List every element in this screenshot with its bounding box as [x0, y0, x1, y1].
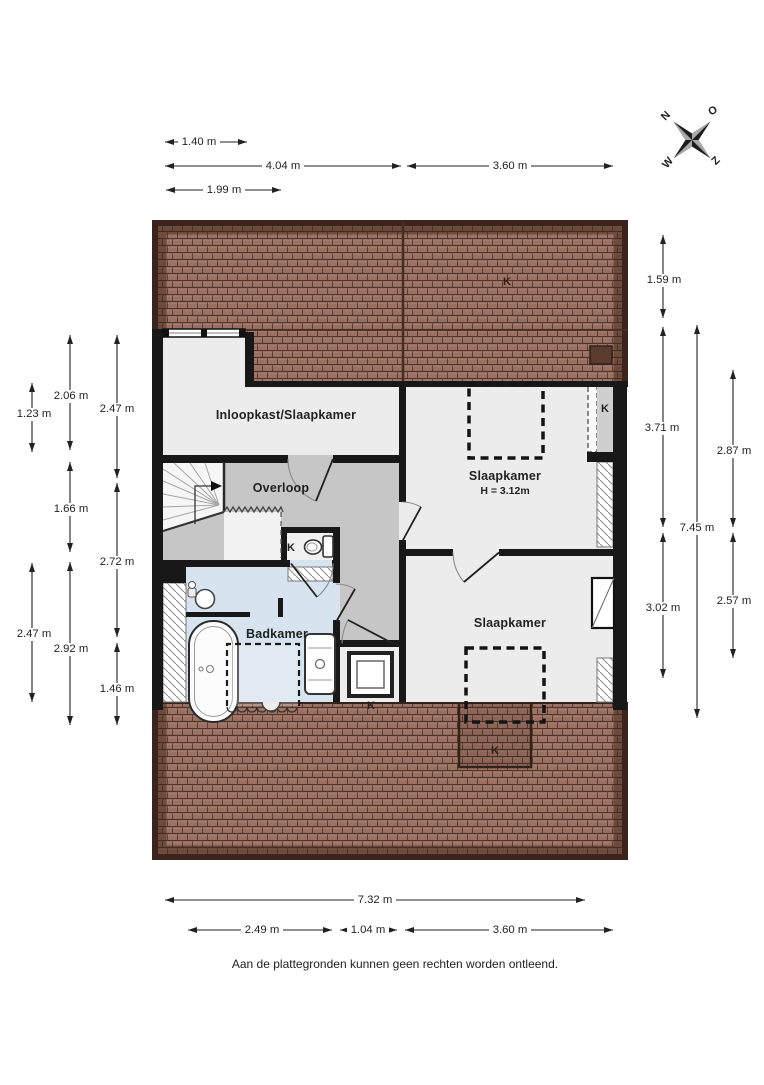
window-top-extension [163, 329, 245, 337]
dim-right-1: 3.71 m [645, 422, 680, 434]
wall-main-vertical-upper [399, 386, 406, 502]
dim-left-3: 1.66 m [54, 503, 89, 515]
wall-overloop-b [333, 455, 399, 463]
dim-bottom-1: 2.49 m [245, 924, 280, 936]
compass-south-label: Z [709, 154, 722, 167]
compass-rose: N O W Z [659, 103, 723, 170]
roof-dormer-shade [459, 703, 531, 767]
closet-dashed-strip [588, 386, 597, 452]
wall-left-outer [152, 329, 163, 710]
dim-bottom-3: 3.60 m [493, 924, 528, 936]
disclaimer-text: Aan de plattegronden kunnen geen rechten… [232, 957, 558, 971]
dim-right-4: 2.87 m [717, 445, 752, 457]
dim-right-3: 7.45 m [680, 522, 715, 534]
wall-badkamer-stub-v [278, 598, 283, 617]
window-right-wall [592, 578, 614, 628]
understairs-area [224, 512, 281, 560]
wall-extension-right [245, 332, 254, 386]
dim-left-5: 2.47 m [100, 403, 135, 415]
wall-closet-stub [587, 452, 613, 462]
label-overloop: Overloop [253, 481, 310, 495]
label-badkamer: Badkamer [246, 627, 308, 641]
k-label-toilet-nook: K [287, 542, 295, 554]
wall-badkamer-stub-h [186, 612, 250, 617]
dim-bottom-0: 7.32 m [358, 894, 393, 906]
wall-slaapkamer-bottom-a [406, 549, 453, 556]
dim-left-0: 1.23 m [17, 408, 52, 420]
label-slaapkamer-top: Slaapkamer [469, 469, 541, 483]
dim-bottom-2: 1.04 m [351, 924, 386, 936]
dim-left-2: 2.06 m [54, 390, 89, 402]
k-label-shower: K [367, 700, 375, 712]
room-inloopkast-extension [163, 337, 245, 458]
closet-strip: K [588, 386, 613, 452]
dim-left-6: 2.72 m [100, 556, 135, 568]
dim-top-0: 1.40 m [182, 136, 217, 148]
label-slaapkamer-top-height: H = 3.12m [480, 485, 529, 497]
wall-corridor-left-a [333, 527, 340, 583]
hatch-right-bottom [597, 658, 613, 702]
bottom-roof: K [152, 702, 628, 860]
wall-main-vertical-lower [399, 540, 406, 702]
wall-overloop-a [163, 455, 288, 463]
bottom-roof-tiles [152, 702, 628, 860]
hallway-corridor [340, 556, 399, 647]
k-label-top-roof: K [503, 276, 511, 288]
dim-right-0: 1.59 m [647, 274, 682, 286]
dim-top-3: 1.99 m [207, 184, 242, 196]
dim-right-2: 3.02 m [646, 602, 681, 614]
k-label-closet: K [601, 403, 609, 415]
wall-corridor-bottom [340, 640, 406, 647]
vanity-icon [305, 634, 335, 694]
chimney [590, 346, 612, 364]
k-label-dormer: K [491, 745, 499, 757]
shower-icon [349, 653, 392, 696]
dim-left-4: 2.92 m [54, 643, 89, 655]
wall-toilet-nook-top [281, 527, 340, 533]
dim-left-7: 1.46 m [100, 683, 135, 695]
dim-top-1: 4.04 m [266, 160, 301, 172]
compass-east-label: O [706, 103, 720, 118]
wall-badkamer-top-a [186, 560, 290, 567]
hatch-left-strip [163, 583, 186, 702]
dim-top-2: 3.60 m [493, 160, 528, 172]
closet-area [597, 386, 613, 452]
dim-right-5: 2.57 m [717, 595, 752, 607]
room-inloopkast-slaapkamer [245, 386, 399, 458]
wall-top-boundary [245, 381, 628, 387]
label-slaapkamer-bottom: Slaapkamer [474, 616, 546, 630]
hatch-right-top [597, 462, 613, 547]
wall-badkamer-block [152, 560, 186, 583]
dim-left-1: 2.47 m [17, 628, 52, 640]
wall-right-outer [613, 381, 627, 710]
floorplan-drawing: K K K [0, 0, 764, 1080]
shower-area-dashed [227, 644, 299, 712]
compass-west-label: W [660, 155, 676, 171]
roof-dormer: K [459, 703, 531, 767]
label-inloopkast-slaapkamer: Inloopkast/Slaapkamer [216, 408, 356, 422]
floorplan-page: K K K [0, 0, 764, 1080]
wall-slaapkamer-bottom-b [499, 549, 613, 556]
compass-north-label: N [659, 109, 673, 123]
